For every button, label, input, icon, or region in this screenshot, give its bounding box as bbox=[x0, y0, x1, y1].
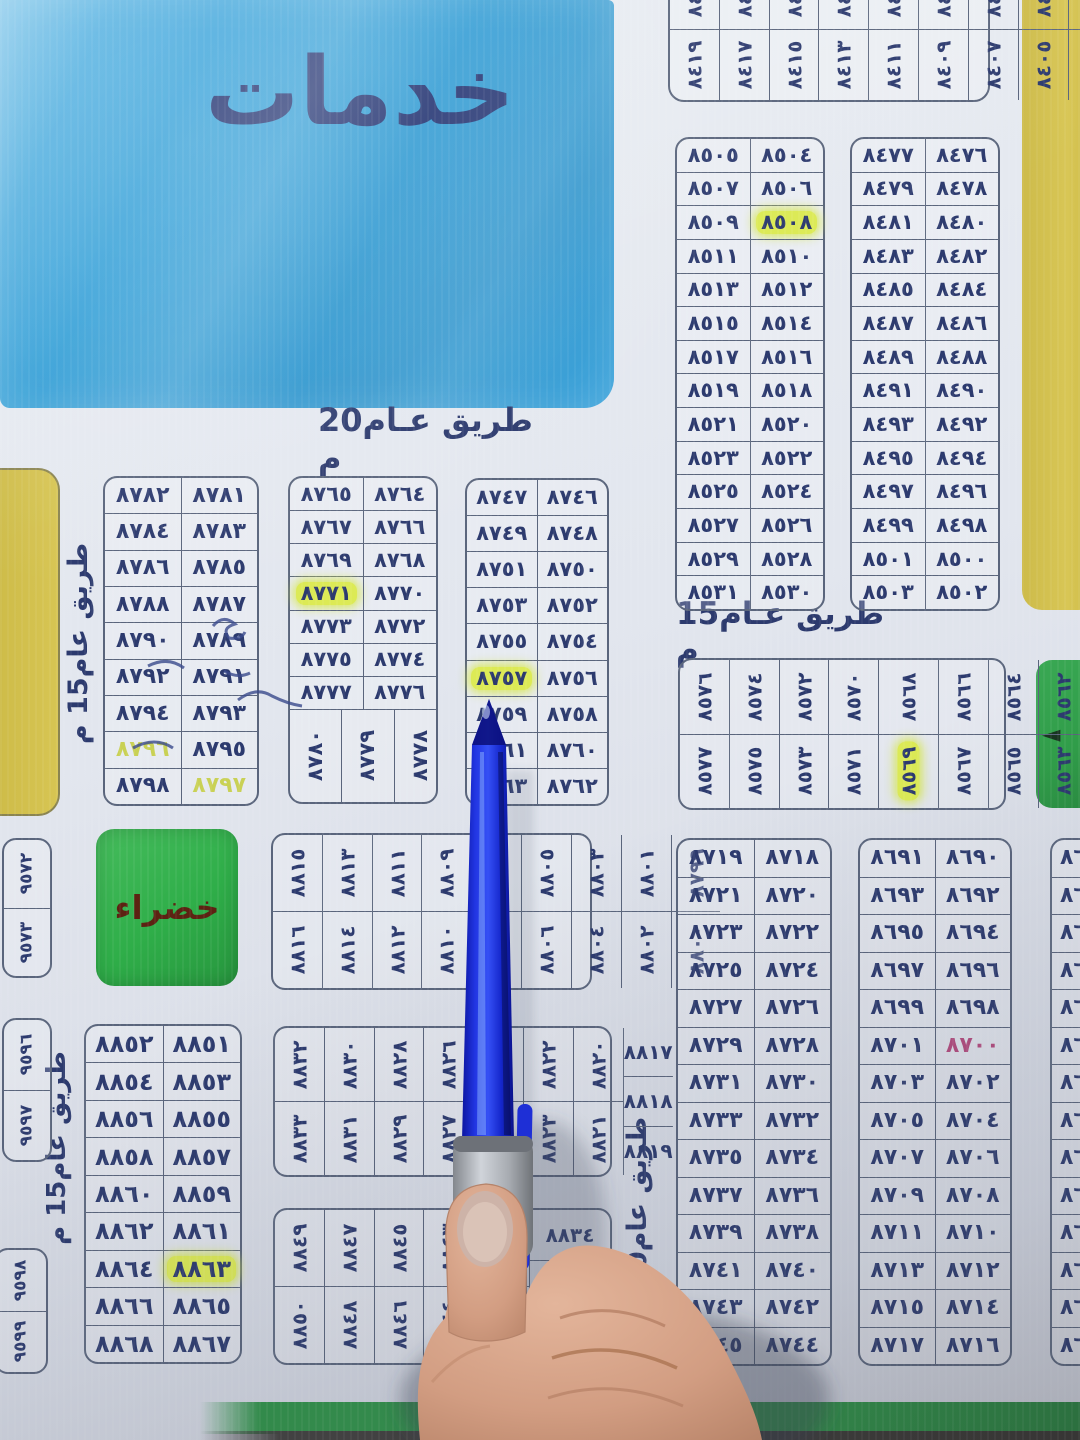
plot-cell: ٨٥٧٢٨٥٧٣ bbox=[779, 660, 829, 808]
plot-cell: ٨٦ bbox=[1052, 1064, 1080, 1102]
plot-cell: ٨٧٧٨ bbox=[394, 710, 446, 802]
plot-number: ٨٤٧٦ bbox=[936, 145, 987, 166]
plot-number: ٨٧١٦ bbox=[946, 1335, 1000, 1357]
plot-number: ٨٧١٥ bbox=[870, 1297, 924, 1319]
plot-number: ٨٨٤١ bbox=[489, 1224, 509, 1273]
plot-cell: ٨٧٩٤٨٧٩٣ bbox=[105, 695, 257, 731]
plot-cell: ٨٨٤١٨٨٤٢ bbox=[473, 1210, 523, 1363]
plot-number: ٨٨٤٨ bbox=[339, 1301, 359, 1350]
plot-cell: ٨٧١٩ bbox=[678, 840, 754, 877]
plot-cell: ٨٥١١٨٥١٠ bbox=[677, 239, 823, 273]
plot-cell: ٨٥٠٧٨٥٠٦ bbox=[677, 172, 823, 206]
plot-cell: ٨٥٧٦ bbox=[680, 660, 729, 734]
plot-number: ٨٧٨١ bbox=[192, 485, 246, 507]
plot-number: ٨٥٢٢ bbox=[761, 448, 812, 469]
plot-cell: ٨٧٤١٨٧٤٠ bbox=[678, 1252, 830, 1290]
plot-number: ٨٦٩٠ bbox=[946, 847, 1000, 869]
plot-number: ٨٧٣٢ bbox=[765, 1110, 819, 1132]
plot-cell: ٨٧٥٧٨٧٥٦ bbox=[467, 660, 607, 696]
plot-number: ٨٧٣٩ bbox=[689, 1222, 743, 1244]
plot-cell: ٨٧٧٩ bbox=[341, 710, 393, 802]
plot-number: ٨٤٩٨ bbox=[936, 515, 987, 536]
plot-cell: ٨٧٢٢ bbox=[754, 915, 831, 952]
plot-cell: ٨٤٧٦ bbox=[925, 139, 999, 172]
plot-number: ٨٤٨١ bbox=[863, 212, 914, 233]
plot-cell: ٨٧٢٧ bbox=[678, 990, 754, 1027]
plot-cell: ٨٤٠٤٨٤٠٥ bbox=[1018, 0, 1068, 100]
plot-cell: ٨٧١٦ bbox=[935, 1328, 1011, 1365]
plot-number: ٨٨٥٥ bbox=[172, 1107, 231, 1131]
plot-number: ٨٥١٣ bbox=[688, 279, 739, 300]
plot-cell: ٨٨٦٥ bbox=[163, 1288, 241, 1324]
plot-number: ٨٥٠٦ bbox=[761, 178, 812, 199]
plot-number: ٨٤٩٩ bbox=[863, 515, 914, 536]
plot-number: ٨٧٢١ bbox=[689, 885, 743, 907]
plot-number: ٨٥١٠ bbox=[761, 246, 812, 267]
plot-cell: ٨٥٢٨ bbox=[750, 543, 824, 576]
plot-cell: ٨٤٩٩٨٤٩٨ bbox=[852, 508, 998, 542]
plot-cell: ٨٧٩٦٨٧٩٥ bbox=[105, 731, 257, 767]
plot-number: ٨٦ bbox=[1060, 1035, 1080, 1057]
plot-cell: ٨٧٠٧ bbox=[860, 1140, 935, 1177]
green-area-label: خضراء bbox=[114, 888, 219, 927]
plot-cell: ٩٥٩٨ bbox=[0, 1250, 46, 1311]
plot-number: ٨٧٨٨ bbox=[116, 594, 170, 616]
plot-cell: ٩٥٩٩ bbox=[0, 1311, 46, 1373]
plot-table-8476-8503: ٨٤٧٧٨٤٧٦٨٤٧٩٨٤٧٨٨٤٨١٨٤٨٠٨٤٨٣٨٤٨٢٨٤٨٥٨٤٨٤… bbox=[850, 137, 1000, 611]
plot-cell: ٨٧٨١ bbox=[181, 478, 258, 513]
plot-number: ٨٥٧٥ bbox=[744, 747, 764, 796]
plot-cell: ٨٨١٧٨٨١٨٨٨١٩ bbox=[623, 1028, 673, 1175]
plot-cell: ٨٨٢٨٨٨٢٩ bbox=[374, 1028, 424, 1175]
plot-cell: ٨٥٠٦ bbox=[750, 173, 824, 206]
plot-cell: ٨٨٢١ bbox=[574, 1101, 623, 1175]
plot-number: ٨٧١٨ bbox=[765, 847, 819, 869]
plot-cell: ٨٧٧٧ bbox=[290, 677, 363, 709]
plot-number: ٨٨١٥ bbox=[287, 849, 307, 898]
plot-cell: ٨٧٠٥٨٧٠٤ bbox=[860, 1102, 1010, 1140]
plot-cell: ٨٧٩١ bbox=[181, 660, 258, 695]
plot-cell: ٨٥١١ bbox=[677, 240, 750, 273]
plot-number: ٨٥٦٤ bbox=[1003, 672, 1023, 721]
plot-cell: ٨٧٦١٨٧٦٠ bbox=[467, 732, 607, 768]
plot-cell: ٨٧٦٦ bbox=[363, 511, 437, 543]
plot-cell: ٨٤٨٤ bbox=[925, 274, 999, 307]
plot-cell: ٨٧٣٤ bbox=[754, 1140, 831, 1177]
plot-number: ٨٥٦٣ bbox=[1053, 747, 1073, 796]
plot-cell: ٨٨٥٤٨٨٥٣ bbox=[86, 1062, 240, 1099]
plot-number: ٨٨١٣ bbox=[337, 849, 357, 898]
plot-cell: ٨٥٦٤ bbox=[989, 660, 1038, 734]
plot-cell: ٨٦ bbox=[1052, 1027, 1080, 1065]
plot-cell: ٨٥٢٧ bbox=[677, 509, 750, 542]
plot-cell: ٨٧١٣٨٧١٢ bbox=[860, 1252, 1010, 1290]
plot-cell: ٨٧٨٤٨٧٨٣ bbox=[105, 513, 257, 549]
plot-number: ٨٥٦٦ bbox=[954, 672, 974, 721]
plot-cell: ٨٨٥١ bbox=[163, 1026, 241, 1062]
plot-number: ٨٧٦٧ bbox=[301, 517, 352, 538]
plot-cell: ٨٥٧١ bbox=[829, 734, 878, 809]
plot-cell: ٨٦٩٧ bbox=[860, 953, 935, 990]
plot-number: ٨٥٦٨ bbox=[899, 672, 919, 721]
plot-cell: ٨٧٤٩٨٧٤٨ bbox=[467, 515, 607, 551]
plot-cell: ٨٧٥١٨٧٥٠ bbox=[467, 551, 607, 587]
plot-cell: ٨٨٠٦ bbox=[522, 911, 571, 988]
plot-cell: ٨٧٨٨٨٧٨٧ bbox=[105, 586, 257, 622]
plot-cell: ٨٨٠٣ bbox=[572, 835, 621, 911]
plot-cell: ٨٧٤٢ bbox=[754, 1290, 831, 1327]
plot-number: ٨٧٢٤ bbox=[765, 960, 819, 982]
plot-number: ٨٥٠٩ bbox=[688, 212, 739, 233]
plot-number: ٨٦ bbox=[1060, 1222, 1080, 1244]
plot-cell: ٨٨٣٤ bbox=[529, 1210, 610, 1363]
plot-cell: ٨٧٩٢ bbox=[105, 660, 181, 695]
plot-cell: ٨٧٠٤ bbox=[935, 1103, 1011, 1140]
plot-number: ٨٤٨٤ bbox=[936, 279, 987, 300]
plot-cell: ٨٥٧٦٨٥٧٧ bbox=[680, 660, 729, 808]
plot-number: ٨٧٦٦ bbox=[374, 517, 425, 538]
plot-number: ٨٤٧٩ bbox=[863, 178, 914, 199]
plot-number: ٨٧٧٣ bbox=[301, 616, 352, 637]
plot-cell: ٨٧٧٣ bbox=[290, 611, 363, 643]
plot-number: ٨٧٣٤ bbox=[765, 1147, 819, 1169]
plot-cell: ٨٨٢٤٨٨٢٥ bbox=[473, 1028, 523, 1175]
plot-number: ٨٧٣٧ bbox=[689, 1185, 743, 1207]
plot-cell: ٨٨٢٥ bbox=[474, 1101, 523, 1175]
plot-cell: ٨٧٩٦ bbox=[105, 732, 181, 767]
plot-cell: ٨٥٠٣٨٥٠٢ bbox=[852, 575, 998, 609]
plot-number: ٩٥٧٣ bbox=[18, 921, 35, 963]
plot-number: ٨٦ bbox=[1060, 1335, 1080, 1357]
plot-cell: ٨٧٥٣ bbox=[467, 588, 537, 623]
plot-cell: ٨٦ bbox=[1052, 1139, 1080, 1177]
plot-cell: ٨٤٩٣٨٤٩٢ bbox=[852, 407, 998, 441]
road-label-15m-left-upper: طريق عام15 م bbox=[56, 538, 102, 748]
plot-cell: ٨٨٤١ bbox=[474, 1210, 523, 1286]
plot-cell: ٨٨٥٧ bbox=[163, 1138, 241, 1174]
plot-number: ٨٥٢٩ bbox=[688, 549, 739, 570]
plot-number: ٨٧٤٦ bbox=[547, 487, 598, 508]
plot-cell: ٨٥١٧٨٥١٦ bbox=[677, 340, 823, 374]
plot-cell: ٨٤٩٩ bbox=[852, 509, 925, 542]
plot-cell: ٨٦٩٢ bbox=[935, 878, 1011, 915]
plot-cell: ٨٧٣٧ bbox=[678, 1178, 754, 1215]
plot-cell: ٨٦ bbox=[1052, 877, 1080, 915]
plot-cell: ٨٨٠٥٨٨٠٦ bbox=[521, 835, 571, 988]
plot-cell: ٨٦٩٣ bbox=[860, 878, 935, 915]
plot-number: ٨٧٧٩ bbox=[357, 730, 378, 781]
plot-cell: ٨٧٢٥ bbox=[678, 953, 754, 990]
plot-number: ٨٨٢٣ bbox=[539, 1114, 559, 1163]
plot-cell: ٨٤١٠ bbox=[869, 0, 918, 29]
plot-number: ٨٥١٥ bbox=[688, 313, 739, 334]
plot-number: ٨٧٩١ bbox=[192, 666, 246, 688]
plot-cell: ٨٤٠٣ bbox=[1069, 29, 1080, 101]
plot-cell: ٨٧٣٢ bbox=[754, 1103, 831, 1140]
plot-cell: ٨٦٩٥٨٦٩٤ bbox=[860, 914, 1010, 952]
plot-cell: ٨٧٩٤ bbox=[105, 696, 181, 731]
plot-number: ٨٨٦٨ bbox=[95, 1332, 154, 1356]
plot-cell: ٨٦ bbox=[1052, 915, 1080, 952]
plot-cell: ٨٨٠٥ bbox=[522, 835, 571, 911]
plot-cell: ٨٤١٢ bbox=[819, 0, 868, 29]
plot-cell: ٨٨٢٦ bbox=[424, 1028, 473, 1101]
plot-cell: ٨٥١٢ bbox=[750, 274, 824, 307]
plot-cell: ٨٤٧٩ bbox=[852, 173, 925, 206]
plot-number: ٨٦٩٢ bbox=[946, 885, 1000, 907]
plot-cell: ٨٧٨٩ bbox=[181, 623, 258, 658]
plot-cell: ٨٥٠١ bbox=[852, 543, 925, 576]
plot-cell: ٨٧٣٠ bbox=[754, 1065, 831, 1102]
plot-cell: ٨٨٥٥ bbox=[163, 1101, 241, 1137]
plot-cell: ٨٨٥٦ bbox=[86, 1101, 163, 1137]
plot-cell: ٨٦ bbox=[1052, 840, 1080, 877]
plot-cell: ٨٥٧٣ bbox=[780, 734, 829, 809]
plot-cell: ٨٨٣٢٨٨٣٣ bbox=[275, 1028, 324, 1175]
plot-cell: ٨٧٠١٨٧٠٠ bbox=[860, 1027, 1010, 1065]
plot-cell: ٨٧١٧٨٧١٦ bbox=[860, 1327, 1010, 1365]
plot-number: ٨٨٤٣ bbox=[439, 1224, 459, 1273]
plot-cell: ٨٨٤٦ bbox=[375, 1286, 424, 1363]
plot-number: ٨٨٢٨ bbox=[389, 1040, 409, 1089]
plot-cell: ٨٧٤٤ bbox=[754, 1328, 831, 1365]
plot-number: ٨٤٩٤ bbox=[936, 448, 987, 469]
plot-number: ٨٧٦٩ bbox=[301, 550, 352, 571]
plot-cell: ٨٧٣٧٨٧٣٦ bbox=[678, 1177, 830, 1215]
plot-number: ٨٤٩٥ bbox=[863, 448, 914, 469]
plot-cell: ٨٧٥٢ bbox=[537, 588, 608, 623]
plot-number: ٩٥٧٢ bbox=[18, 853, 35, 895]
plot-cell: ٨٤٨٣٨٤٨٢ bbox=[852, 239, 998, 273]
plot-cell: ٨٧٥٨ bbox=[537, 697, 608, 732]
plot-number: ٨٦٩٩ bbox=[870, 997, 924, 1019]
plot-cell: ٨٨٥٦٨٨٥٥ bbox=[86, 1100, 240, 1137]
plot-cell: ٨٤١٥ bbox=[770, 29, 819, 101]
plot-cell: ٨٧٢٩٨٧٢٨ bbox=[678, 1027, 830, 1065]
plot-number: ٨٨١٤ bbox=[337, 926, 357, 975]
plot-cell: ٨٧٥٥٨٧٥٤ bbox=[467, 623, 607, 659]
plot-table-9572-9573: ٩٥٧٢٩٥٧٣ bbox=[2, 838, 52, 978]
plot-number: ٨٤٨٢ bbox=[936, 246, 987, 267]
plot-cell: ٨٨١٦ bbox=[273, 911, 322, 988]
plot-cell: ٨٨٤٢ bbox=[474, 1286, 523, 1363]
plot-number: ٨٨١١ bbox=[387, 849, 407, 898]
plot-cell: ٨٨٤٤ bbox=[424, 1286, 473, 1363]
plot-cell: ٨٨٤٩ bbox=[275, 1210, 324, 1286]
plot-number: ٨٧٨٧ bbox=[192, 594, 246, 616]
plot-cell: ٨٤١٠٨٤١١ bbox=[868, 0, 918, 100]
plot-number: ٨٦ bbox=[1060, 1072, 1080, 1094]
plot-cell: ٩٥٧٢ bbox=[4, 840, 50, 908]
plot-number: ٨٤٠٨ bbox=[934, 0, 954, 18]
plot-cell: ٨٨٥٤ bbox=[86, 1063, 163, 1099]
plot-cell: ٨٤٠٨٨٤٠٩ bbox=[918, 0, 968, 100]
plot-cell: ٨٦٩٠ bbox=[935, 840, 1011, 877]
plot-cell: ٨٧٠٩٨٧٠٨ bbox=[860, 1177, 1010, 1215]
plot-cell: ٨٨٢٧ bbox=[424, 1101, 473, 1175]
plot-number: ٨٧٠٦ bbox=[946, 1147, 1000, 1169]
plot-cell: ٨٦ bbox=[1052, 1327, 1080, 1365]
plot-cell: ٨٤٠٨ bbox=[919, 0, 968, 29]
plot-number: ٨٧٠٤ bbox=[946, 1110, 1000, 1132]
plot-cell: ٨٨١٥٨٨١٦ bbox=[273, 835, 322, 988]
plot-number: ٨٧٧٥ bbox=[301, 649, 352, 670]
plot-cell: ٨٧١٥٨٧١٤ bbox=[860, 1289, 1010, 1327]
plot-cell: ٨٨١٠ bbox=[422, 911, 471, 988]
plot-cell: ٨٤٩١٨٤٩٠ bbox=[852, 373, 998, 407]
plot-cell: ٨٧٢٩ bbox=[678, 1028, 754, 1065]
plot-cell: ٨٨٢٠ bbox=[574, 1028, 623, 1101]
plot-number: ٨٧٢٨ bbox=[765, 1035, 819, 1057]
plot-table-8746-8763: ٨٧٤٧٨٧٤٦٨٧٤٩٨٧٤٨٨٧٥١٨٧٥٠٨٧٥٣٨٧٥٢٨٧٥٥٨٧٥٤… bbox=[465, 478, 609, 806]
plot-cell: ٨٥٠٧ bbox=[677, 173, 750, 206]
plot-number: ٨٨٥٣ bbox=[172, 1070, 231, 1094]
plot-number: ٨٤٩٧ bbox=[863, 481, 914, 502]
plot-cell: ٨٥٠١٨٥٠٠ bbox=[852, 542, 998, 576]
plot-number: ٨٨٢٠ bbox=[588, 1040, 608, 1089]
plot-cell: ٨٧٧٥٨٧٧٤ bbox=[290, 643, 436, 676]
plot-number: ٨٤١٠ bbox=[884, 0, 904, 18]
plot-number: ٨٧٨٣ bbox=[192, 521, 246, 543]
plot-cell: ٨٤٩١ bbox=[852, 374, 925, 407]
plot-number: ٨٧٠٣ bbox=[870, 1072, 924, 1094]
plot-number: ٨٦٩٨ bbox=[946, 997, 1000, 1019]
plot-number: ٨٨٦٧ bbox=[172, 1332, 231, 1356]
plot-number: ٨٦ bbox=[1060, 1260, 1080, 1282]
plot-cell: ٨٧١٣ bbox=[860, 1253, 935, 1290]
plot-cell: ٨٨٥٨٨٨٥٧ bbox=[86, 1137, 240, 1174]
plot-cell: ٨٧٧١٨٧٧٠ bbox=[290, 576, 436, 609]
plot-number: ٨٥٦٧ bbox=[954, 747, 974, 796]
plot-cell: ٨٧٣٩ bbox=[678, 1215, 754, 1252]
plot-number: ٨٤٠٧ bbox=[983, 40, 1003, 89]
plot-cell: ٨٦٩٨ bbox=[935, 990, 1011, 1027]
plot-number: ٨٤٨٠ bbox=[936, 212, 987, 233]
plot-cell: ٨٨٦٠٨٨٥٩ bbox=[86, 1175, 240, 1212]
plot-cell: ٨٧٠٩ bbox=[860, 1178, 935, 1215]
plot-number: ٨٧٧٨ bbox=[410, 730, 431, 781]
plot-number: ٨٨٥٢ bbox=[95, 1032, 154, 1056]
plot-cell: ٨٧٧٣٨٧٧٢ bbox=[290, 610, 436, 643]
plot-cell: ٨٧١١٨٧١٠ bbox=[860, 1214, 1010, 1252]
plot-number: ٨٤٨٥ bbox=[863, 279, 914, 300]
plot-cell: ٨٦ bbox=[1052, 1290, 1080, 1327]
plot-cell: ٨٨٠٩ bbox=[422, 835, 471, 911]
plot-number: ٨٤٩٦ bbox=[936, 481, 987, 502]
plot-cell: ٨٦ bbox=[1052, 1103, 1080, 1140]
plot-number: ٨٨٢٩ bbox=[389, 1114, 409, 1163]
plot-cell: ٨٨٣٢ bbox=[275, 1028, 324, 1101]
plot-cell: ٨٥٢٩ bbox=[677, 543, 750, 576]
plot-cell: ٨٧٦٩ bbox=[290, 544, 363, 576]
plot-number: ٩٥٩٩ bbox=[12, 1321, 29, 1363]
plot-cell: ٨٧٥٣٨٧٥٢ bbox=[467, 587, 607, 623]
board-green-border bbox=[200, 1402, 1080, 1434]
plot-cell: ٨٨٦٨ bbox=[86, 1326, 163, 1362]
plot-cell: ٨٦٩٧٨٦٩٦ bbox=[860, 952, 1010, 990]
plot-number: ٨٤١٥ bbox=[784, 40, 804, 89]
plot-number: ٨٦٩٧ bbox=[870, 960, 924, 982]
plot-number: ٨٧٦٥ bbox=[301, 484, 352, 505]
plot-number: ٨٨٤٧ bbox=[339, 1224, 359, 1273]
plot-number: ٨٥١٧ bbox=[688, 347, 739, 368]
plot-number: ٨٨٤٤ bbox=[439, 1301, 459, 1350]
plot-cell: ٨٨٢٨ bbox=[375, 1028, 424, 1101]
plot-cell: ٨٥٧٧ bbox=[680, 734, 729, 809]
plot-number: ٨٥٢٧ bbox=[688, 515, 739, 536]
plot-cell: ٨٧٧٥ bbox=[290, 644, 363, 676]
plot-number: ٨٧٠٩ bbox=[870, 1185, 924, 1207]
plot-cell: ٨٤٨١٨٤٨٠ bbox=[852, 205, 998, 239]
plot-number: ٨٧٢٣ bbox=[689, 922, 743, 944]
plot-number: ٨٧٥٦ bbox=[547, 668, 598, 689]
plot-number: ٨٨٦٦ bbox=[95, 1294, 154, 1318]
plot-cell: ٨٥١٩ bbox=[677, 374, 750, 407]
plot-cell: ٨٤٨١ bbox=[852, 206, 925, 239]
plot-number: ٨٤٩٠ bbox=[936, 380, 987, 401]
plot-number: ٨٤١١ bbox=[884, 40, 904, 89]
plot-number: ٨٥٧٦ bbox=[694, 672, 714, 721]
plot-number: ٨٧٥٨ bbox=[547, 704, 598, 725]
plot-number: ٨٨٥٧ bbox=[172, 1145, 231, 1169]
plot-cell: ٨٥٦٤٨٥٦٥ bbox=[988, 660, 1038, 808]
plot-number: ٨٥٧٤ bbox=[744, 672, 764, 721]
plot-number: ٨٤٠٩ bbox=[934, 40, 954, 89]
plot-number: ٨٨٦١ bbox=[172, 1219, 231, 1243]
plot-number: ٨٧٨٩ bbox=[192, 630, 246, 652]
plot-cell: ٨٨٦٢٨٨٦١ bbox=[86, 1212, 240, 1249]
plot-number: ٨٥٢١ bbox=[688, 414, 739, 435]
plot-cell: ٨٨٥٢٨٨٥١ bbox=[86, 1026, 240, 1062]
plot-number: ٨٨٣٢ bbox=[289, 1040, 309, 1089]
plot-cell: ٨٤١٧ bbox=[720, 29, 769, 101]
plot-cell: ٨٧٧٧٨٧٧٦ bbox=[290, 676, 436, 709]
plot-number: ٨٧٧٢ bbox=[374, 616, 425, 637]
plot-number: ٨٧٤٩ bbox=[476, 523, 527, 544]
plot-cell: ٨٨٦٤ bbox=[86, 1251, 163, 1287]
plot-table-8781-8798: ٨٧٨٢٨٧٨١٨٧٨٤٨٧٨٣٨٧٨٦٨٧٨٥٨٧٨٨٨٧٨٧٨٧٩٠٨٧٨٩… bbox=[103, 476, 259, 806]
plot-number: ٨٧٣٠ bbox=[765, 1072, 819, 1094]
plot-number: ٨٦٩٣ bbox=[870, 885, 924, 907]
plot-number: ٨٨٣٤ bbox=[546, 1225, 595, 1245]
plot-cell: ٨٧٤٠ bbox=[754, 1253, 831, 1290]
plot-cell: ٨٧٩٣ bbox=[181, 696, 258, 731]
plot-number: ٨٥٢٥ bbox=[688, 481, 739, 502]
plot-cell: ٨٧٠٢ bbox=[935, 1065, 1011, 1102]
plot-cell: ٨٥١٧ bbox=[677, 341, 750, 374]
plot-cell: ٨٨٥٩ bbox=[163, 1176, 241, 1212]
services-label: خدمات bbox=[120, 38, 600, 147]
plot-number: ٨٤٩٣ bbox=[863, 414, 914, 435]
plot-cell: ٨٦ bbox=[1052, 952, 1080, 990]
plot-cell: ٨٨١١٨٨١٢ bbox=[372, 835, 422, 988]
plot-number: ٨٤١٣ bbox=[834, 40, 854, 89]
plot-cell: ٨٨٦٦ bbox=[86, 1288, 163, 1324]
plot-number: ٨٥١٢ bbox=[761, 279, 812, 300]
plot-cell: ٨٥٢١ bbox=[677, 408, 750, 441]
plot-table-9596-9597: ٩٥٩٦٩٥٩٧ bbox=[2, 1018, 52, 1162]
plot-cell: ٨٧٦٧ bbox=[290, 511, 363, 543]
plot-number: ٨٧٨٥ bbox=[192, 557, 246, 579]
plot-number: ٨٨١٩ bbox=[624, 1141, 673, 1161]
yellow-area-left bbox=[0, 468, 60, 816]
plot-number: ٨٨٤٦ bbox=[389, 1301, 409, 1350]
plot-cell: ٨٥٦٨٨٥٦٩ bbox=[878, 660, 938, 808]
plot-number: ٨٨٥٨ bbox=[95, 1145, 154, 1169]
plot-number: ٨٥١٨ bbox=[761, 380, 812, 401]
plot-number: ٨٧٨٦ bbox=[116, 557, 170, 579]
plot-cell: ٨٧٤٣٨٧٤٢ bbox=[678, 1289, 830, 1327]
